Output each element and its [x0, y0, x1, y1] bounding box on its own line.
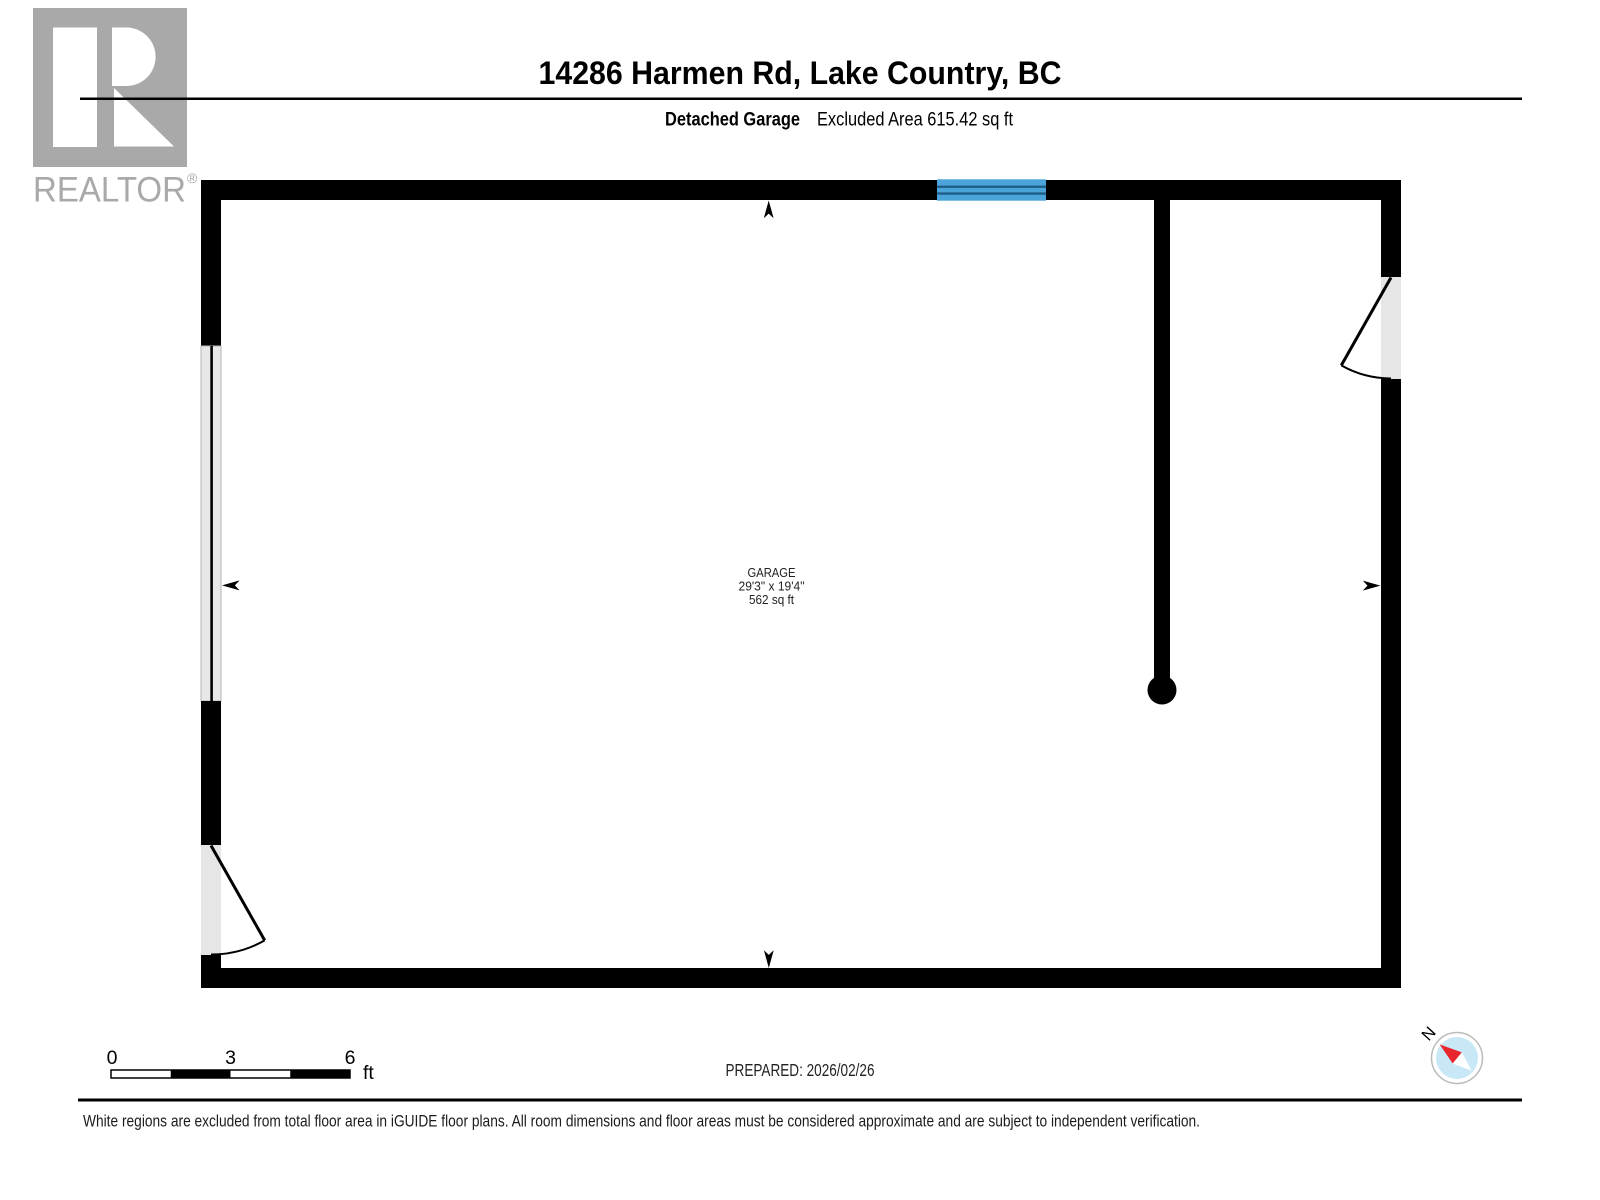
svg-text:29'3" x 19'4": 29'3" x 19'4": [739, 580, 805, 594]
svg-text:562 sq ft: 562 sq ft: [749, 593, 794, 607]
svg-text:REALTOR: REALTOR: [33, 170, 186, 210]
svg-text:®: ®: [187, 170, 198, 186]
svg-text:14286 Harmen Rd, Lake Country,: 14286 Harmen Rd, Lake Country, BC: [539, 55, 1062, 91]
svg-text:N: N: [1418, 1024, 1439, 1045]
svg-text:6: 6: [345, 1047, 356, 1069]
svg-text:0: 0: [107, 1047, 118, 1069]
svg-text:Detached Garage: Detached Garage: [665, 109, 800, 131]
svg-text:3: 3: [225, 1047, 236, 1069]
svg-text:GARAGE: GARAGE: [748, 566, 796, 580]
svg-text:Excluded Area 615.42 sq ft: Excluded Area 615.42 sq ft: [817, 109, 1013, 131]
svg-text:ft: ft: [363, 1062, 374, 1084]
svg-text:PREPARED: 2026/02/26: PREPARED: 2026/02/26: [726, 1060, 875, 1080]
svg-text:White regions are excluded fro: White regions are excluded from total fl…: [83, 1113, 1200, 1131]
